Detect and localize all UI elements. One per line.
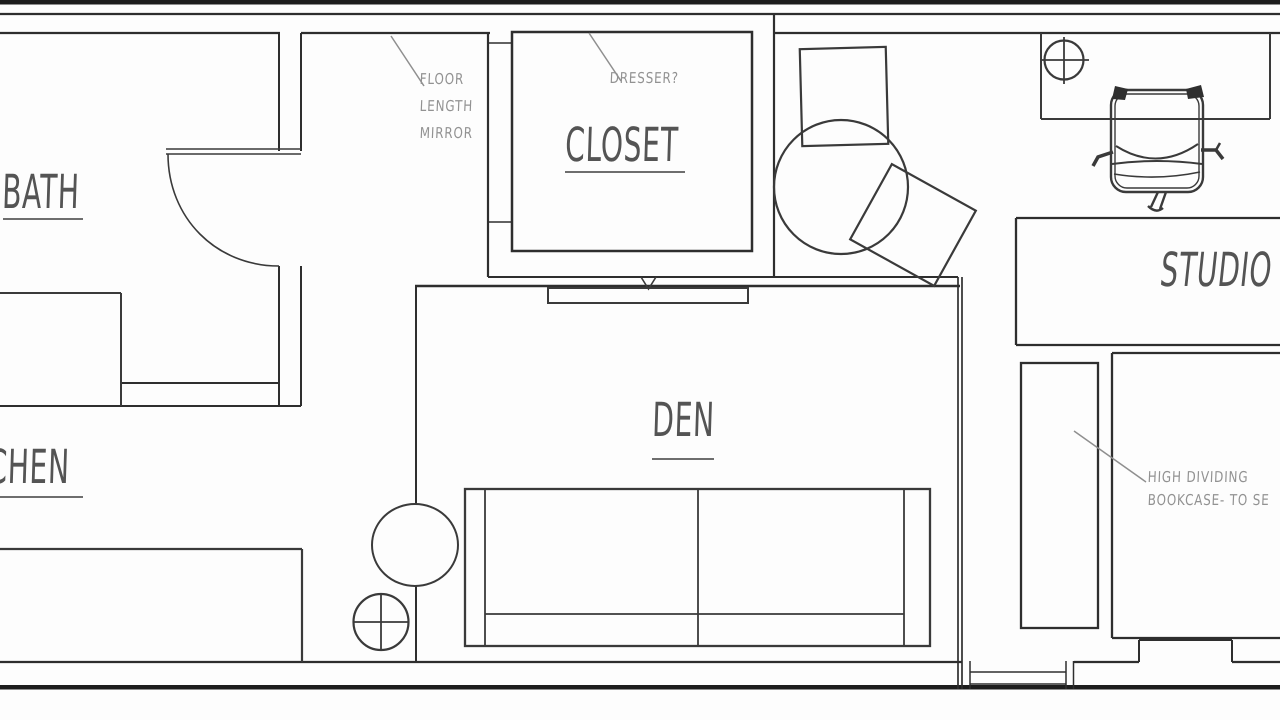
tv-console	[548, 288, 748, 303]
bath-vanity	[0, 293, 121, 406]
bath-label: BATH	[2, 169, 81, 216]
wall-notch	[1139, 640, 1232, 662]
wall-bottom-outer	[0, 685, 1280, 690]
high-dividing-bookcase	[1021, 363, 1098, 628]
leader-lines	[391, 33, 1146, 482]
door-swing-arc	[168, 154, 279, 266]
floor-plan: BATH KITCHEN CLOSET DEN STUDIO FLOOR LEN…	[0, 0, 1280, 720]
studio-label: STUDIO	[1158, 247, 1275, 294]
chair-armrest	[1201, 150, 1223, 159]
den-label: DEN	[652, 397, 716, 444]
chair-armrest	[1216, 143, 1220, 150]
chair-caster	[1151, 192, 1166, 209]
round-table	[774, 120, 908, 254]
round-side-table	[372, 504, 458, 586]
chair-corner-tab	[1112, 86, 1128, 100]
wall-top-outer	[0, 0, 1280, 5]
bath-door	[166, 149, 301, 266]
chair-back-line	[1114, 172, 1200, 177]
mirror-note-line1: FLOOR	[419, 72, 464, 87]
bookcase-note-line2: BOOKCASE- TO SE	[1147, 493, 1269, 508]
kitchen-underline	[0, 496, 83, 498]
closet-label: CLOSET	[565, 122, 680, 169]
mirror-note-line3: MIRROR	[419, 126, 473, 141]
closet-underline	[565, 171, 685, 173]
sofa	[465, 489, 930, 646]
desk-lamp	[1041, 37, 1089, 84]
bookcase-note-line1: HIGH DIVIDING	[1147, 470, 1248, 485]
kitchen-counter	[0, 549, 302, 662]
side-chair	[800, 47, 889, 146]
bottom-window	[970, 661, 1074, 689]
chair-back-line	[1112, 161, 1202, 164]
bath-underline	[3, 218, 83, 220]
bookcase-leader	[1074, 431, 1146, 482]
floor-lamp	[353, 594, 409, 650]
chair-seat-curve	[1116, 144, 1198, 159]
floorplan-canvas	[0, 0, 1280, 720]
den-underline	[652, 458, 714, 460]
chair-corner-tab	[1186, 85, 1204, 99]
dresser-note: DRESSER?	[609, 71, 679, 86]
tilted-chair	[850, 164, 976, 286]
den-walls	[415, 277, 962, 689]
office-chair-icon	[1093, 85, 1223, 211]
kitchen-label: KITCHEN	[0, 444, 70, 491]
mirror-note-line2: LENGTH	[419, 99, 473, 114]
mirror-wall	[301, 33, 512, 277]
